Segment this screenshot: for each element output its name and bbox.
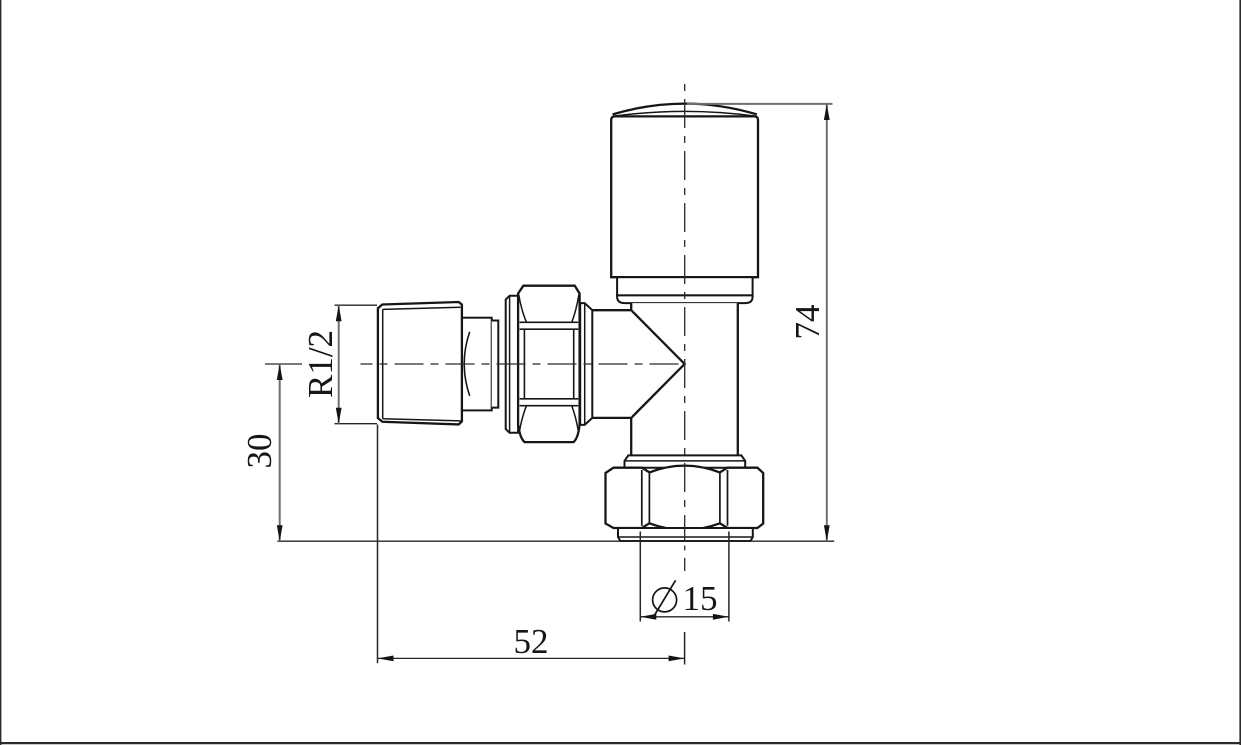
svg-text:15: 15 [683,579,718,618]
svg-text:52: 52 [514,622,549,661]
svg-text:R1/2: R1/2 [301,330,340,398]
svg-text:74: 74 [788,305,827,340]
svg-text:30: 30 [240,434,279,469]
